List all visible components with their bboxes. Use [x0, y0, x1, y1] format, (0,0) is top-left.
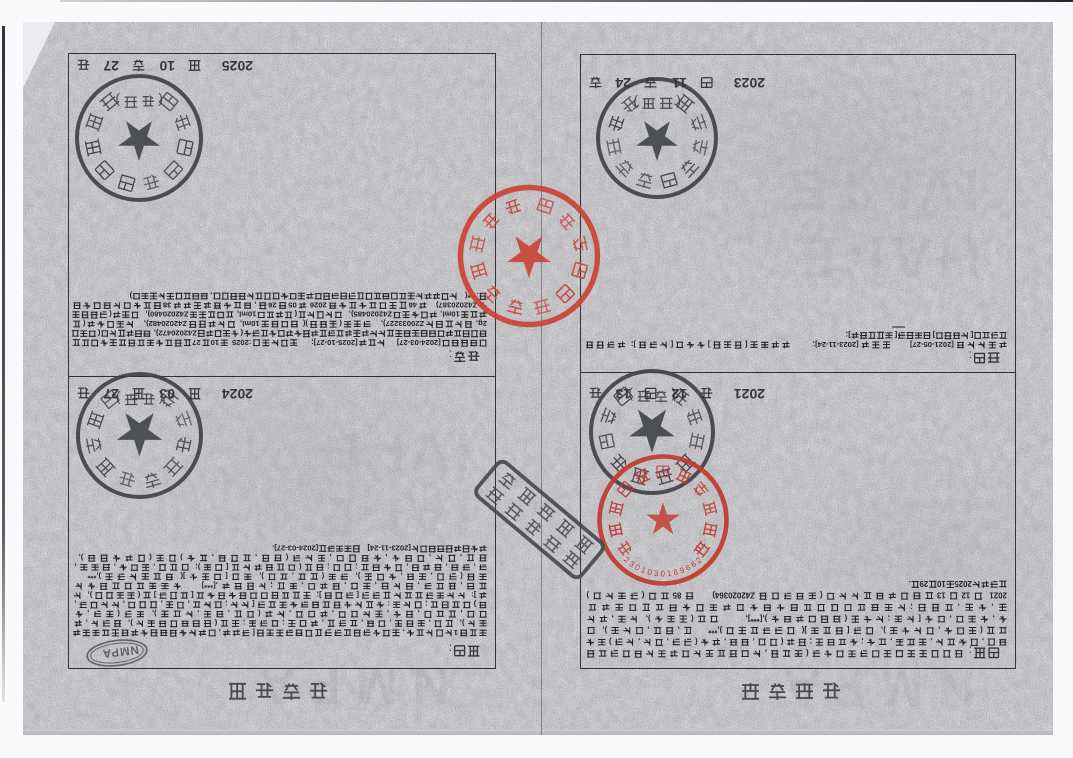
svg-text:13: 13	[615, 386, 631, 402]
svg-text:3: 3	[653, 569, 659, 579]
svg-text:0: 0	[646, 567, 653, 577]
svg-text:0: 0	[660, 570, 665, 579]
svg-text:2023: 2023	[734, 75, 765, 91]
svg-text:2021: 2021	[734, 386, 765, 402]
svg-text:03: 03	[159, 386, 175, 402]
svg-text:1: 1	[666, 569, 672, 579]
svg-text:27: 27	[103, 386, 119, 402]
svg-text:2025: 2025	[222, 58, 253, 74]
svg-text:27: 27	[103, 58, 119, 74]
svg-text:10: 10	[159, 58, 175, 74]
svg-text:2024: 2024	[222, 386, 253, 402]
svg-text:12: 12	[671, 386, 687, 402]
svg-text:24: 24	[615, 75, 631, 91]
svg-text:11: 11	[672, 75, 687, 91]
